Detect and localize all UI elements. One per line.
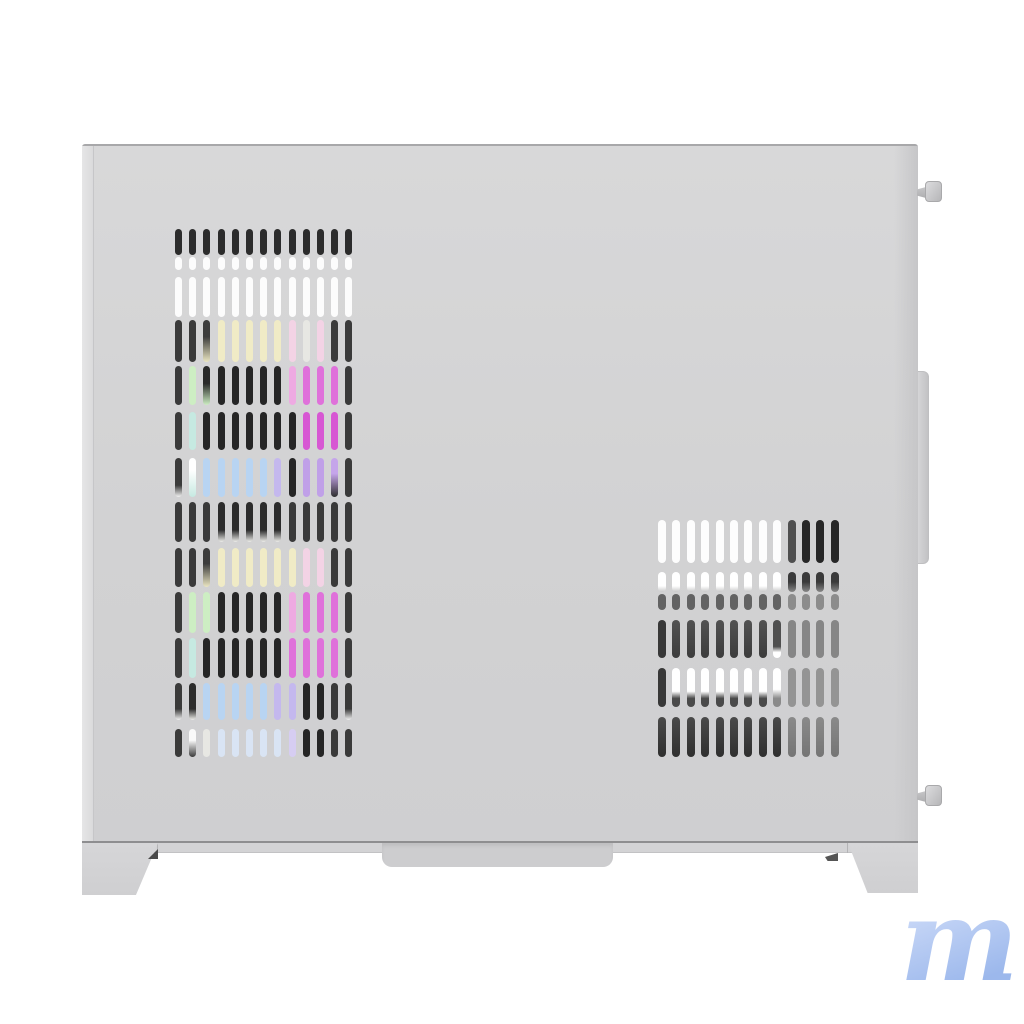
vent-slot: [687, 572, 695, 592]
vent-slot: [730, 620, 738, 658]
vent-slot: [701, 520, 709, 563]
vent-slot: [672, 520, 680, 563]
vent-slot: [744, 572, 752, 592]
vent-slot: [687, 594, 695, 610]
vent-slot: [831, 620, 839, 658]
vent-slot: [788, 717, 796, 757]
vent-slot: [759, 520, 767, 563]
vent-slot: [816, 620, 824, 658]
screw-head-icon: [925, 785, 942, 806]
vent-slot: [716, 717, 724, 757]
vent-slot: [672, 594, 680, 610]
vent-slot: [701, 572, 709, 592]
vent-slot: [672, 572, 680, 592]
skirt-seam-right: [847, 843, 848, 853]
vent-slot: [831, 594, 839, 610]
vent-slot: [816, 520, 824, 563]
vent-slot: [773, 594, 781, 610]
vent-slot: [744, 717, 752, 757]
vent-slot: [788, 668, 796, 707]
vent-slot: [716, 594, 724, 610]
vent-slot: [701, 594, 709, 610]
vent-slot: [730, 717, 738, 757]
vent-slot: [716, 668, 724, 707]
vent-slot: [701, 717, 709, 757]
vent-slot: [744, 594, 752, 610]
vent-slot: [744, 520, 752, 563]
vent-slot: [802, 572, 810, 592]
vent-slot: [759, 572, 767, 592]
vent-slot: [687, 620, 695, 658]
vent-slot: [788, 572, 796, 592]
vent-slot: [701, 620, 709, 658]
vent-slot: [744, 668, 752, 707]
vent-slot: [672, 668, 680, 707]
vent-slot: [831, 520, 839, 563]
vent-slot: [802, 668, 810, 707]
vent-slot: [773, 520, 781, 563]
vent-slot: [658, 520, 666, 563]
bottom-center-tab: [382, 843, 613, 867]
vent-slot: [672, 717, 680, 757]
vent-slot: [716, 620, 724, 658]
vent-slot: [687, 668, 695, 707]
vent-slot: [744, 620, 752, 658]
vent-slot: [816, 668, 824, 707]
product-photo-stage: m: [0, 0, 1024, 1024]
vent-slot: [658, 594, 666, 610]
vent-slot: [802, 594, 810, 610]
vent-slot: [730, 572, 738, 592]
vent-slot: [788, 620, 796, 658]
vent-slot: [802, 520, 810, 563]
vent-slot: [759, 668, 767, 707]
vent-slot: [831, 572, 839, 592]
vent-slot: [773, 717, 781, 757]
vent-slot: [730, 520, 738, 563]
vent-slot: [658, 668, 666, 707]
vent-slot: [773, 620, 781, 658]
watermark-logo: m: [900, 886, 1015, 998]
vent-slot: [759, 620, 767, 658]
vent-slot: [831, 668, 839, 707]
screw-head-icon: [925, 181, 942, 202]
vent-slot: [658, 620, 666, 658]
vent-slot: [802, 717, 810, 757]
vent-slot: [802, 620, 810, 658]
vent-slot: [687, 717, 695, 757]
vent-slot: [658, 717, 666, 757]
vent-slot: [773, 572, 781, 592]
vent-slot: [759, 717, 767, 757]
vent-slot: [831, 717, 839, 757]
vent-slot: [759, 594, 767, 610]
vent-slot: [687, 520, 695, 563]
vent-slot: [788, 594, 796, 610]
vent-slot: [716, 572, 724, 592]
vent-slot: [773, 668, 781, 707]
vent-slot: [788, 520, 796, 563]
vent-slot: [816, 594, 824, 610]
vent-slot: [701, 668, 709, 707]
vent-slot: [730, 594, 738, 610]
vent-slot: [816, 572, 824, 592]
vent-slot: [658, 572, 666, 592]
vent-slot: [672, 620, 680, 658]
vent-slot: [816, 717, 824, 757]
vent-slot: [716, 520, 724, 563]
vent-slot: [730, 668, 738, 707]
